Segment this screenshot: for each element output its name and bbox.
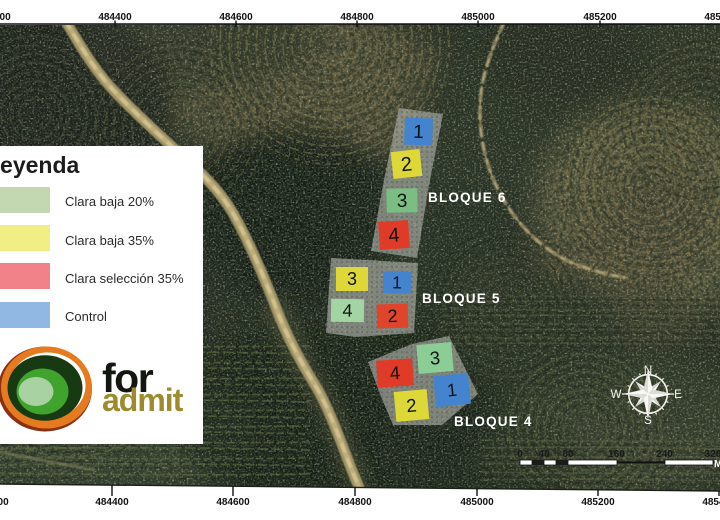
svg-text:2: 2 [387,306,398,326]
svg-text:M: M [714,459,720,470]
svg-text:3: 3 [397,191,408,212]
svg-text:485200: 485200 [581,497,615,508]
svg-text:admit: admit [102,382,184,418]
svg-text:4: 4 [389,362,401,384]
svg-text:4: 4 [342,301,352,321]
svg-text:Leyenda: Leyenda [0,152,80,178]
svg-text:484400: 484400 [95,497,129,508]
svg-text:Clara selección 35%: Clara selección 35% [65,271,184,286]
svg-text:484600: 484600 [216,497,250,508]
svg-text:1: 1 [392,272,402,292]
svg-text:485000: 485000 [460,497,494,508]
svg-text:484200: 484200 [0,497,9,508]
svg-text:484200: 484200 [0,12,11,23]
svg-text:1: 1 [413,122,424,143]
svg-text:240: 240 [656,449,673,460]
svg-text:160: 160 [608,449,625,460]
svg-text:W: W [611,389,622,401]
svg-text:40: 40 [538,449,550,460]
svg-text:Clara baja 20%: Clara baja 20% [65,194,154,209]
svg-text:BLOQUE 5: BLOQUE 5 [422,291,501,306]
svg-text:3: 3 [429,347,441,369]
svg-text:485400: 485400 [702,497,720,508]
svg-text:BLOQUE 4: BLOQUE 4 [454,414,533,429]
svg-text:Control: Control [65,309,107,324]
svg-text:N: N [644,365,652,377]
svg-text:3: 3 [347,269,357,289]
svg-text:2: 2 [400,153,413,176]
svg-text:485400: 485400 [704,12,720,23]
svg-text:484800: 484800 [338,497,372,508]
svg-text:2: 2 [405,394,417,416]
svg-text:1: 1 [446,380,458,401]
svg-text:4: 4 [388,224,401,247]
svg-text:80: 80 [562,449,574,460]
svg-text:Clara baja 35%: Clara baja 35% [65,233,154,248]
svg-text:BLOQUE 6: BLOQUE 6 [428,190,507,205]
svg-text:0: 0 [517,449,523,460]
svg-text:S: S [644,415,652,427]
svg-text:E: E [674,389,682,401]
